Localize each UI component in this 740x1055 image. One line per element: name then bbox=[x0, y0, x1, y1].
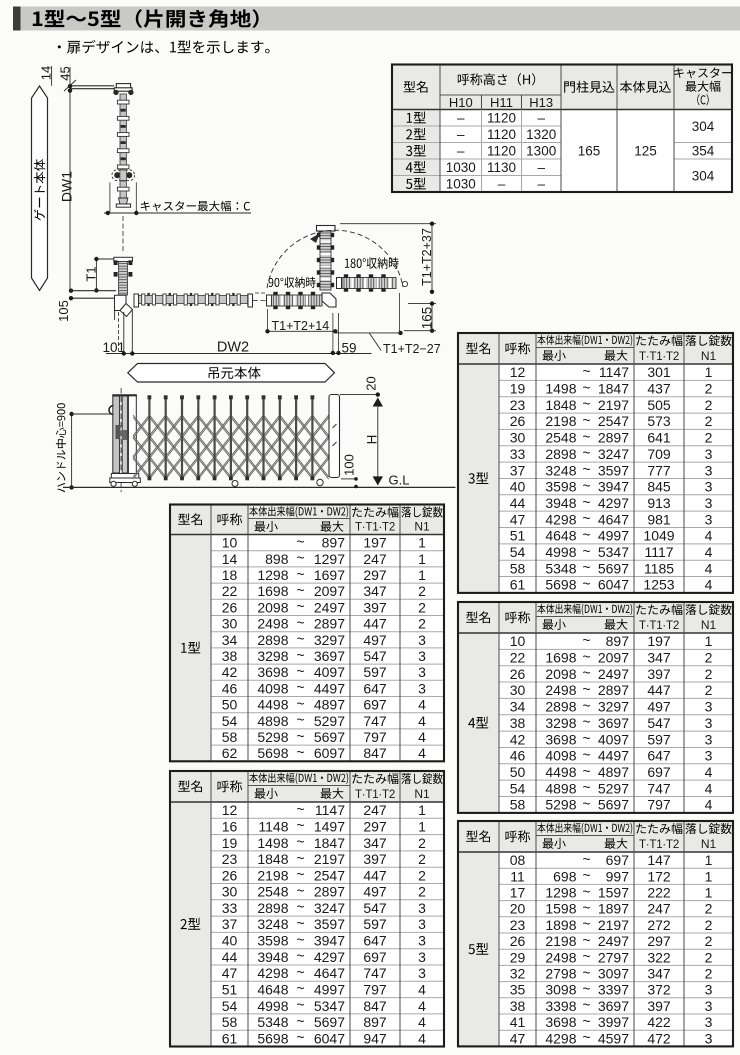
svg-text:33: 33 bbox=[222, 900, 238, 916]
svg-text:~: ~ bbox=[296, 712, 304, 728]
svg-text:~: ~ bbox=[296, 882, 304, 898]
svg-text:2198: 2198 bbox=[545, 933, 576, 949]
svg-text:641: 641 bbox=[647, 430, 671, 446]
svg-text:447: 447 bbox=[363, 616, 387, 632]
svg-text:DW1: DW1 bbox=[59, 171, 75, 202]
svg-text:4298: 4298 bbox=[545, 511, 576, 527]
svg-text:1: 1 bbox=[418, 818, 426, 834]
svg-text:1: 1 bbox=[705, 633, 713, 649]
svg-text:61: 61 bbox=[222, 1030, 238, 1046]
svg-text:747: 747 bbox=[363, 965, 387, 981]
svg-text:4097: 4097 bbox=[314, 664, 345, 680]
svg-text:~: ~ bbox=[296, 614, 304, 630]
svg-text:1497: 1497 bbox=[314, 818, 345, 834]
svg-text:2897: 2897 bbox=[598, 430, 629, 446]
svg-text:5298: 5298 bbox=[257, 729, 288, 745]
svg-text:T1+T2+14: T1+T2+14 bbox=[272, 319, 330, 333]
svg-text:898: 898 bbox=[265, 551, 289, 567]
svg-text:297: 297 bbox=[363, 818, 387, 834]
svg-text:597: 597 bbox=[363, 664, 387, 680]
svg-text:2498: 2498 bbox=[545, 949, 576, 965]
svg-text:697: 697 bbox=[647, 764, 671, 780]
svg-text:H: H bbox=[364, 435, 379, 445]
svg-text:18: 18 bbox=[222, 567, 238, 583]
svg-text:20: 20 bbox=[364, 376, 379, 390]
svg-text:T·T1·T2: T·T1·T2 bbox=[355, 789, 395, 801]
svg-text:497: 497 bbox=[363, 884, 387, 900]
svg-text:58: 58 bbox=[222, 729, 238, 745]
svg-text:3248: 3248 bbox=[545, 462, 576, 478]
svg-text:4: 4 bbox=[705, 544, 713, 560]
svg-text:1848: 1848 bbox=[257, 851, 288, 867]
svg-text:1147: 1147 bbox=[599, 364, 629, 380]
svg-text:1030: 1030 bbox=[446, 177, 476, 192]
svg-text:N1: N1 bbox=[701, 837, 717, 851]
svg-text:35: 35 bbox=[510, 982, 526, 998]
svg-text:2547: 2547 bbox=[598, 413, 629, 429]
svg-text:913: 913 bbox=[647, 495, 671, 511]
svg-text:5297: 5297 bbox=[314, 713, 345, 729]
svg-text:38: 38 bbox=[222, 648, 238, 664]
svg-text:1698: 1698 bbox=[545, 650, 576, 666]
svg-text:10: 10 bbox=[510, 633, 526, 649]
svg-text:~: ~ bbox=[296, 598, 304, 614]
svg-text:T·T1·T2: T·T1·T2 bbox=[639, 620, 679, 632]
svg-text:2: 2 bbox=[705, 413, 713, 429]
svg-text:~: ~ bbox=[582, 494, 590, 510]
svg-text:–: – bbox=[537, 160, 545, 175]
svg-text:4297: 4297 bbox=[598, 495, 629, 511]
svg-text:947: 947 bbox=[363, 1030, 387, 1046]
svg-text:3698: 3698 bbox=[545, 1014, 576, 1030]
svg-text:3698: 3698 bbox=[257, 664, 288, 680]
svg-text:2: 2 bbox=[418, 851, 426, 867]
svg-text:354: 354 bbox=[692, 144, 715, 159]
svg-text:697: 697 bbox=[363, 949, 387, 965]
svg-text:172: 172 bbox=[647, 868, 671, 884]
svg-text:~: ~ bbox=[582, 576, 590, 592]
svg-text:247: 247 bbox=[363, 551, 387, 567]
svg-text:54: 54 bbox=[510, 780, 526, 796]
svg-text:5347: 5347 bbox=[598, 544, 629, 560]
svg-text:2898: 2898 bbox=[257, 632, 288, 648]
svg-text:34: 34 bbox=[510, 699, 526, 715]
svg-text:5697: 5697 bbox=[598, 560, 629, 576]
svg-text:30: 30 bbox=[510, 430, 526, 446]
svg-text:23: 23 bbox=[510, 917, 526, 933]
svg-text:58: 58 bbox=[510, 560, 526, 576]
svg-text:4: 4 bbox=[705, 528, 713, 544]
svg-text:5297: 5297 bbox=[598, 780, 629, 796]
svg-text:397: 397 bbox=[647, 666, 671, 682]
svg-text:697: 697 bbox=[606, 852, 630, 868]
svg-text:47: 47 bbox=[222, 965, 238, 981]
svg-text:347: 347 bbox=[647, 966, 671, 982]
svg-text:~: ~ bbox=[582, 948, 590, 964]
svg-text:3948: 3948 bbox=[257, 949, 288, 965]
svg-text:23: 23 bbox=[222, 851, 238, 867]
svg-text:~: ~ bbox=[296, 631, 304, 647]
svg-text:41: 41 bbox=[510, 1014, 526, 1030]
svg-text:~: ~ bbox=[296, 915, 304, 931]
svg-text:~: ~ bbox=[582, 730, 590, 746]
svg-text:3: 3 bbox=[705, 462, 713, 478]
svg-text:4098: 4098 bbox=[257, 680, 288, 696]
svg-text:~: ~ bbox=[296, 899, 304, 915]
svg-text:797: 797 bbox=[363, 729, 387, 745]
svg-text:44: 44 bbox=[510, 495, 526, 511]
svg-text:4: 4 bbox=[418, 745, 426, 761]
svg-text:1: 1 bbox=[418, 551, 426, 567]
svg-text:3948: 3948 bbox=[545, 495, 576, 511]
svg-text:3297: 3297 bbox=[598, 699, 629, 715]
svg-text:2: 2 bbox=[418, 835, 426, 851]
svg-text:54: 54 bbox=[510, 544, 526, 560]
svg-text:647: 647 bbox=[363, 933, 387, 949]
svg-text:697: 697 bbox=[363, 697, 387, 713]
svg-text:1117: 1117 bbox=[644, 544, 673, 560]
svg-text:4998: 4998 bbox=[545, 544, 576, 560]
svg-text:1847: 1847 bbox=[598, 381, 629, 397]
svg-text:3947: 3947 bbox=[598, 479, 629, 495]
svg-text:4497: 4497 bbox=[598, 748, 629, 764]
svg-text:42: 42 bbox=[222, 664, 238, 680]
svg-text:422: 422 bbox=[647, 1014, 671, 1030]
svg-text:3: 3 bbox=[705, 1014, 713, 1030]
svg-text:3: 3 bbox=[418, 900, 426, 916]
svg-text:397: 397 bbox=[363, 599, 387, 615]
svg-text:5298: 5298 bbox=[545, 797, 576, 813]
svg-text:58: 58 bbox=[510, 797, 526, 813]
svg-text:26: 26 bbox=[510, 666, 526, 682]
svg-text:5698: 5698 bbox=[257, 745, 288, 761]
svg-text:~: ~ bbox=[296, 1029, 304, 1045]
svg-text:897: 897 bbox=[322, 535, 346, 551]
svg-text:847: 847 bbox=[363, 998, 387, 1014]
svg-text:1498: 1498 bbox=[257, 835, 288, 851]
svg-text:1120: 1120 bbox=[487, 111, 516, 126]
svg-text:1848: 1848 bbox=[545, 397, 576, 413]
svg-text:2: 2 bbox=[418, 599, 426, 615]
svg-text:2098: 2098 bbox=[257, 599, 288, 615]
svg-text:2898: 2898 bbox=[545, 699, 576, 715]
svg-text:2: 2 bbox=[418, 884, 426, 900]
svg-text:N1: N1 bbox=[701, 618, 717, 632]
svg-text:22: 22 bbox=[510, 650, 526, 666]
svg-text:T1+T2−27: T1+T2−27 bbox=[383, 342, 441, 356]
svg-text:3: 3 bbox=[418, 632, 426, 648]
svg-text:1300: 1300 bbox=[526, 144, 556, 159]
svg-text:2: 2 bbox=[705, 650, 713, 666]
svg-text:~: ~ bbox=[582, 714, 590, 730]
svg-text:573: 573 bbox=[647, 413, 671, 429]
svg-text:165: 165 bbox=[578, 144, 601, 159]
svg-text:2: 2 bbox=[705, 682, 713, 698]
svg-text:34: 34 bbox=[222, 632, 238, 648]
svg-text:5697: 5697 bbox=[598, 797, 629, 813]
svg-text:40: 40 bbox=[510, 479, 526, 495]
svg-text:2548: 2548 bbox=[545, 430, 576, 446]
svg-text:~: ~ bbox=[296, 817, 304, 833]
svg-text:47: 47 bbox=[510, 1030, 526, 1046]
svg-text:2: 2 bbox=[418, 616, 426, 632]
svg-text:–: – bbox=[457, 144, 465, 159]
svg-text:165: 165 bbox=[419, 307, 434, 330]
svg-text:~: ~ bbox=[582, 543, 590, 559]
svg-text:~: ~ bbox=[296, 582, 304, 598]
svg-text:N1: N1 bbox=[414, 787, 430, 801]
svg-text:897: 897 bbox=[363, 1014, 387, 1030]
svg-text:3397: 3397 bbox=[598, 982, 629, 998]
svg-text:4: 4 bbox=[418, 998, 426, 1014]
svg-text:59: 59 bbox=[342, 341, 357, 356]
svg-text:347: 347 bbox=[363, 583, 387, 599]
svg-text:1698: 1698 bbox=[257, 583, 288, 599]
svg-text:61: 61 bbox=[510, 577, 526, 593]
svg-text:30: 30 bbox=[222, 616, 238, 632]
svg-text:4: 4 bbox=[418, 713, 426, 729]
svg-text:3: 3 bbox=[705, 748, 713, 764]
svg-text:~: ~ bbox=[582, 851, 590, 867]
svg-text:4998: 4998 bbox=[257, 998, 288, 1014]
svg-text:2: 2 bbox=[705, 381, 713, 397]
svg-text:~: ~ bbox=[296, 566, 304, 582]
svg-text:4: 4 bbox=[705, 577, 713, 593]
svg-text:3247: 3247 bbox=[314, 900, 345, 916]
svg-text:5348: 5348 bbox=[257, 1014, 288, 1030]
svg-text:3248: 3248 bbox=[257, 916, 288, 932]
svg-text:1120: 1120 bbox=[487, 144, 516, 159]
svg-text:5697: 5697 bbox=[314, 729, 345, 745]
svg-text:4897: 4897 bbox=[314, 697, 345, 713]
svg-text:2: 2 bbox=[705, 901, 713, 917]
svg-text:2798: 2798 bbox=[545, 966, 576, 982]
svg-text:3247: 3247 bbox=[598, 446, 629, 462]
svg-text:H13: H13 bbox=[529, 95, 553, 110]
svg-text:33: 33 bbox=[510, 446, 526, 462]
svg-text:26: 26 bbox=[510, 933, 526, 949]
svg-text:447: 447 bbox=[363, 867, 387, 883]
svg-text:T1+T2+37: T1+T2+37 bbox=[420, 228, 434, 286]
svg-text:51: 51 bbox=[510, 528, 526, 544]
svg-text:845: 845 bbox=[647, 479, 671, 495]
svg-text:4647: 4647 bbox=[314, 965, 345, 981]
svg-text:T·T1·T2: T·T1·T2 bbox=[639, 351, 679, 363]
svg-text:~: ~ bbox=[582, 796, 590, 812]
svg-text:4098: 4098 bbox=[545, 748, 576, 764]
svg-text:2: 2 bbox=[418, 583, 426, 599]
svg-text:~: ~ bbox=[582, 445, 590, 461]
svg-text:2548: 2548 bbox=[257, 884, 288, 900]
svg-text:~: ~ bbox=[582, 559, 590, 575]
svg-text:~: ~ bbox=[296, 980, 304, 996]
svg-text:247: 247 bbox=[363, 802, 387, 818]
svg-text:3698: 3698 bbox=[545, 731, 576, 747]
svg-text:2: 2 bbox=[705, 917, 713, 933]
svg-text:1148: 1148 bbox=[258, 818, 288, 834]
svg-text:2097: 2097 bbox=[314, 583, 345, 599]
svg-text:3597: 3597 bbox=[314, 916, 345, 932]
svg-text:23: 23 bbox=[510, 397, 526, 413]
svg-text:29: 29 bbox=[510, 949, 526, 965]
svg-text:747: 747 bbox=[647, 780, 671, 796]
svg-text:272: 272 bbox=[647, 917, 671, 933]
svg-text:1: 1 bbox=[705, 364, 713, 380]
svg-text:12: 12 bbox=[510, 364, 526, 380]
svg-text:22: 22 bbox=[222, 583, 238, 599]
svg-text:3298: 3298 bbox=[257, 648, 288, 664]
svg-text:17: 17 bbox=[510, 885, 526, 901]
svg-text:3947: 3947 bbox=[314, 933, 345, 949]
svg-text:2: 2 bbox=[705, 430, 713, 446]
svg-text:38: 38 bbox=[510, 715, 526, 731]
svg-text:~: ~ bbox=[582, 997, 590, 1013]
svg-text:4: 4 bbox=[418, 981, 426, 997]
svg-text:3598: 3598 bbox=[545, 479, 576, 495]
svg-text:~: ~ bbox=[296, 964, 304, 980]
svg-text:1: 1 bbox=[705, 852, 713, 868]
svg-text:26: 26 bbox=[222, 867, 238, 883]
svg-text:~: ~ bbox=[582, 477, 590, 493]
svg-text:2897: 2897 bbox=[598, 682, 629, 698]
svg-text:38: 38 bbox=[510, 998, 526, 1014]
svg-text:N1: N1 bbox=[414, 520, 430, 534]
svg-text:1: 1 bbox=[705, 885, 713, 901]
svg-text:4997: 4997 bbox=[314, 981, 345, 997]
svg-text:2097: 2097 bbox=[598, 650, 629, 666]
svg-text:3: 3 bbox=[705, 731, 713, 747]
svg-text:709: 709 bbox=[647, 446, 671, 462]
svg-text:44: 44 bbox=[222, 949, 238, 965]
svg-text:3: 3 bbox=[418, 648, 426, 664]
svg-text:3298: 3298 bbox=[545, 715, 576, 731]
svg-text:~: ~ bbox=[296, 801, 304, 817]
svg-text:1597: 1597 bbox=[598, 885, 629, 901]
svg-text:147: 147 bbox=[647, 852, 671, 868]
svg-text:447: 447 bbox=[647, 682, 671, 698]
svg-text:797: 797 bbox=[647, 797, 671, 813]
svg-text:497: 497 bbox=[647, 699, 671, 715]
svg-text:3: 3 bbox=[418, 916, 426, 932]
svg-text:105: 105 bbox=[56, 300, 71, 322]
svg-text:100: 100 bbox=[342, 454, 357, 476]
svg-text:3997: 3997 bbox=[598, 1014, 629, 1030]
svg-text:897: 897 bbox=[606, 633, 630, 649]
svg-text:~: ~ bbox=[582, 981, 590, 997]
svg-text:~: ~ bbox=[582, 1013, 590, 1029]
svg-text:3: 3 bbox=[705, 982, 713, 998]
svg-text:797: 797 bbox=[363, 981, 387, 997]
svg-text:4: 4 bbox=[418, 1030, 426, 1046]
svg-text:50: 50 bbox=[510, 764, 526, 780]
svg-text:6047: 6047 bbox=[598, 577, 629, 593]
svg-text:~: ~ bbox=[582, 697, 590, 713]
svg-text:1598: 1598 bbox=[545, 901, 576, 917]
svg-text:DW2: DW2 bbox=[217, 340, 249, 356]
svg-text:4997: 4997 bbox=[598, 528, 629, 544]
svg-text:847: 847 bbox=[363, 745, 387, 761]
svg-text:2: 2 bbox=[705, 933, 713, 949]
svg-text:10: 10 bbox=[222, 535, 238, 551]
svg-text:304: 304 bbox=[692, 119, 715, 134]
svg-text:547: 547 bbox=[363, 648, 387, 664]
svg-text:2198: 2198 bbox=[545, 413, 576, 429]
svg-text:3098: 3098 bbox=[545, 982, 576, 998]
svg-text:2098: 2098 bbox=[545, 666, 576, 682]
svg-text:3: 3 bbox=[418, 664, 426, 680]
svg-text:2: 2 bbox=[705, 666, 713, 682]
svg-text:4898: 4898 bbox=[257, 713, 288, 729]
svg-text:297: 297 bbox=[647, 933, 671, 949]
svg-text:547: 547 bbox=[647, 715, 671, 731]
svg-text:~: ~ bbox=[296, 695, 304, 711]
svg-text:1298: 1298 bbox=[545, 885, 576, 901]
svg-text:3: 3 bbox=[418, 680, 426, 696]
svg-text:3: 3 bbox=[418, 933, 426, 949]
svg-text:4: 4 bbox=[418, 697, 426, 713]
svg-text:~: ~ bbox=[582, 461, 590, 477]
svg-text:3097: 3097 bbox=[598, 966, 629, 982]
svg-text:297: 297 bbox=[363, 567, 387, 583]
svg-text:505: 505 bbox=[647, 397, 671, 413]
svg-text:~: ~ bbox=[582, 681, 590, 697]
svg-text:–: – bbox=[537, 111, 545, 126]
svg-text:~: ~ bbox=[582, 900, 590, 916]
svg-text:2497: 2497 bbox=[314, 599, 345, 615]
svg-text:~: ~ bbox=[582, 964, 590, 980]
svg-text:46: 46 bbox=[222, 680, 238, 696]
svg-text:G.L: G.L bbox=[389, 473, 410, 488]
svg-text:2: 2 bbox=[705, 397, 713, 413]
svg-text:~: ~ bbox=[582, 412, 590, 428]
svg-text:~: ~ bbox=[582, 363, 590, 379]
svg-text:4597: 4597 bbox=[598, 1030, 629, 1046]
svg-text:T1: T1 bbox=[84, 266, 99, 281]
svg-text:47: 47 bbox=[510, 511, 526, 527]
svg-text:5698: 5698 bbox=[257, 1030, 288, 1046]
svg-text:597: 597 bbox=[363, 916, 387, 932]
svg-text:–: – bbox=[457, 127, 465, 142]
svg-text:30: 30 bbox=[510, 682, 526, 698]
svg-text:1147: 1147 bbox=[315, 802, 345, 818]
svg-text:26: 26 bbox=[222, 599, 238, 615]
svg-text:4898: 4898 bbox=[545, 780, 576, 796]
svg-text:301: 301 bbox=[647, 364, 671, 380]
svg-text:58: 58 bbox=[222, 1014, 238, 1030]
svg-text:304: 304 bbox=[692, 168, 715, 183]
svg-text:5698: 5698 bbox=[545, 577, 576, 593]
svg-text:2498: 2498 bbox=[545, 682, 576, 698]
svg-text:N1: N1 bbox=[701, 349, 717, 363]
svg-text:~: ~ bbox=[296, 550, 304, 566]
svg-text:19: 19 bbox=[510, 381, 526, 397]
svg-text:16: 16 bbox=[222, 818, 238, 834]
svg-text:2: 2 bbox=[705, 949, 713, 965]
svg-text:~: ~ bbox=[296, 997, 304, 1013]
svg-text:2198: 2198 bbox=[257, 867, 288, 883]
svg-text:2547: 2547 bbox=[314, 867, 345, 883]
svg-text:1049: 1049 bbox=[643, 528, 674, 544]
svg-text:4897: 4897 bbox=[598, 764, 629, 780]
svg-text:4498: 4498 bbox=[257, 697, 288, 713]
svg-text:~: ~ bbox=[582, 883, 590, 899]
svg-text:372: 372 bbox=[647, 982, 671, 998]
svg-text:62: 62 bbox=[222, 745, 238, 761]
svg-text:4298: 4298 bbox=[257, 965, 288, 981]
svg-text:5348: 5348 bbox=[545, 560, 576, 576]
svg-text:4648: 4648 bbox=[545, 528, 576, 544]
svg-text:1130: 1130 bbox=[487, 160, 516, 175]
